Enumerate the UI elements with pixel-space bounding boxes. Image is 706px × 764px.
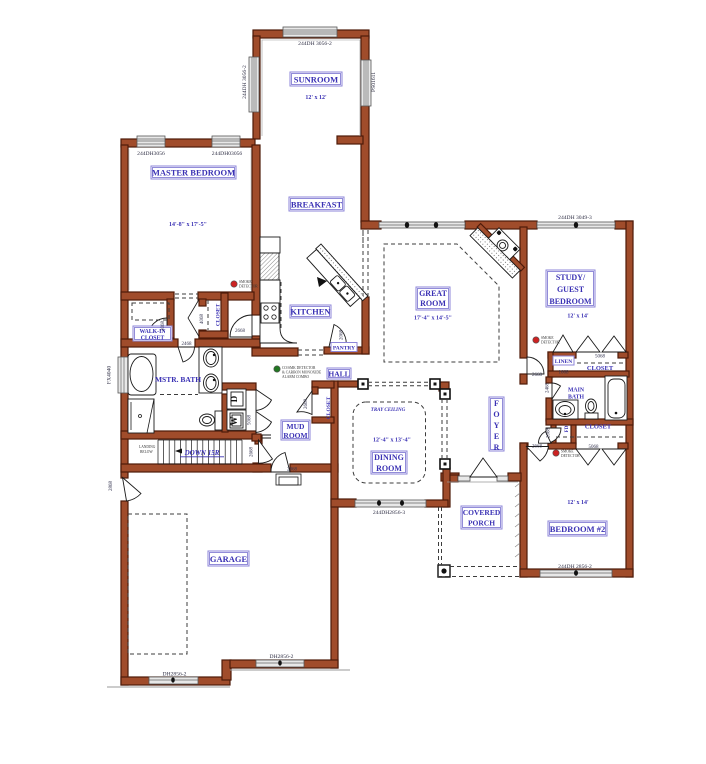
svg-text:244DH 3049-3: 244DH 3049-3 <box>558 215 592 221</box>
svg-text:PORCH: PORCH <box>468 519 495 528</box>
svg-text:DETECTOR: DETECTOR <box>561 454 580 458</box>
svg-text:MAIN: MAIN <box>568 388 585 394</box>
svg-text:1668: 1668 <box>559 371 570 376</box>
svg-text:17'-4" x 14'-5": 17'-4" x 14'-5" <box>414 316 452 322</box>
svg-text:2668: 2668 <box>235 329 246 334</box>
svg-text:GREAT: GREAT <box>419 289 448 298</box>
svg-text:DOWN 15R: DOWN 15R <box>184 449 220 457</box>
svg-text:ROOM: ROOM <box>420 299 446 308</box>
svg-text:SMOKE: SMOKE <box>239 280 252 284</box>
svg-text:244DH 2856-2: 244DH 2856-2 <box>558 564 592 570</box>
svg-text:DH2856-2: DH2856-2 <box>270 654 294 660</box>
svg-text:& CARBON MONOXIDE: & CARBON MONOXIDE <box>282 371 322 375</box>
svg-text:DINING: DINING <box>374 453 404 462</box>
svg-text:HALL: HALL <box>328 370 349 379</box>
svg-text:BATH: BATH <box>568 395 584 401</box>
svg-text:2868: 2868 <box>287 468 298 473</box>
svg-text:2668: 2668 <box>304 399 309 410</box>
svg-text:5068: 5068 <box>589 445 600 450</box>
svg-text:5068: 5068 <box>595 355 606 360</box>
svg-text:MASTER BEDROOM: MASTER BEDROOM <box>152 168 235 178</box>
svg-text:O: O <box>493 410 499 419</box>
svg-text:DETECTOR: DETECTOR <box>541 341 560 345</box>
svg-text:MSTR. BATH: MSTR. BATH <box>155 375 201 384</box>
svg-text:244DH2856-3: 244DH2856-3 <box>373 510 406 516</box>
svg-text:2068: 2068 <box>161 321 166 332</box>
svg-text:2668: 2668 <box>532 373 543 378</box>
svg-text:E: E <box>494 432 499 441</box>
svg-text:DETECTOR: DETECTOR <box>239 285 258 289</box>
svg-text:DH2856-2: DH2856-2 <box>163 672 187 678</box>
svg-text:244DH 3056-2: 244DH 3056-2 <box>242 65 248 99</box>
svg-text:F: F <box>494 399 499 408</box>
svg-text:PANTRY: PANTRY <box>333 346 355 352</box>
svg-text:CO/SMK DETECTOR: CO/SMK DETECTOR <box>282 366 316 370</box>
svg-text:W: W <box>229 417 239 426</box>
svg-text:GUEST: GUEST <box>557 285 585 294</box>
svg-text:12' x 14': 12' x 14' <box>567 500 589 506</box>
svg-text:CLOSET: CLOSET <box>216 304 222 327</box>
svg-text:SUNROOM: SUNROOM <box>294 75 338 85</box>
svg-text:PS01611: PS01611 <box>371 72 377 92</box>
svg-text:ROOM: ROOM <box>283 431 307 440</box>
svg-text:BEDROOM #2: BEDROOM #2 <box>550 524 606 534</box>
svg-text:14'-8" x 17'-5": 14'-8" x 17'-5" <box>169 222 207 228</box>
svg-text:ROOM: ROOM <box>376 464 402 473</box>
svg-text:2068: 2068 <box>340 330 345 341</box>
svg-text:SMOKE: SMOKE <box>541 336 554 340</box>
svg-text:STUDY/: STUDY/ <box>556 273 586 282</box>
svg-text:FD: FD <box>565 425 570 432</box>
svg-text:2468: 2468 <box>182 342 193 347</box>
svg-text:244DH03056: 244DH03056 <box>212 151 243 157</box>
svg-text:FX4040: FX4040 <box>107 366 113 385</box>
svg-text:CLOSET: CLOSET <box>587 365 614 372</box>
svg-text:4068: 4068 <box>200 314 205 325</box>
svg-text:CLOSET: CLOSET <box>326 397 332 420</box>
svg-text:GARAGE: GARAGE <box>210 554 248 564</box>
svg-text:244DH3056: 244DH3056 <box>137 151 165 157</box>
svg-text:2468: 2468 <box>546 383 551 394</box>
svg-text:2668: 2668 <box>250 447 255 458</box>
svg-text:KITCHEN: KITCHEN <box>290 307 331 317</box>
svg-text:MUD: MUD <box>287 422 305 431</box>
svg-text:CLOSET: CLOSET <box>585 424 612 431</box>
svg-text:244DH 3056-2: 244DH 3056-2 <box>298 41 332 47</box>
svg-text:2068: 2068 <box>547 428 552 439</box>
svg-text:D: D <box>229 395 239 402</box>
svg-text:5068: 5068 <box>248 415 253 426</box>
svg-text:R: R <box>494 443 500 452</box>
svg-text:LINEN: LINEN <box>555 359 572 365</box>
svg-text:CLOSET: CLOSET <box>141 336 165 342</box>
svg-text:2868: 2868 <box>109 481 114 492</box>
svg-text:BEDROOM: BEDROOM <box>549 297 592 306</box>
svg-text:12'-4" x 13'-4": 12'-4" x 13'-4" <box>373 438 411 444</box>
svg-text:LANDING: LANDING <box>139 445 156 449</box>
svg-text:Y: Y <box>494 421 500 430</box>
svg-text:12' x 14': 12' x 14' <box>567 314 589 320</box>
svg-text:2668: 2668 <box>532 445 543 450</box>
svg-text:ALARM COMBO: ALARM COMBO <box>282 375 309 379</box>
svg-text:TRAY CEILING: TRAY CEILING <box>371 408 406 413</box>
svg-text:BELOW: BELOW <box>140 450 153 454</box>
svg-text:BREAKFAST: BREAKFAST <box>291 200 343 210</box>
svg-text:COVERED: COVERED <box>463 508 501 517</box>
svg-text:SMOKE: SMOKE <box>561 450 574 454</box>
svg-text:12' x 12': 12' x 12' <box>305 95 327 101</box>
